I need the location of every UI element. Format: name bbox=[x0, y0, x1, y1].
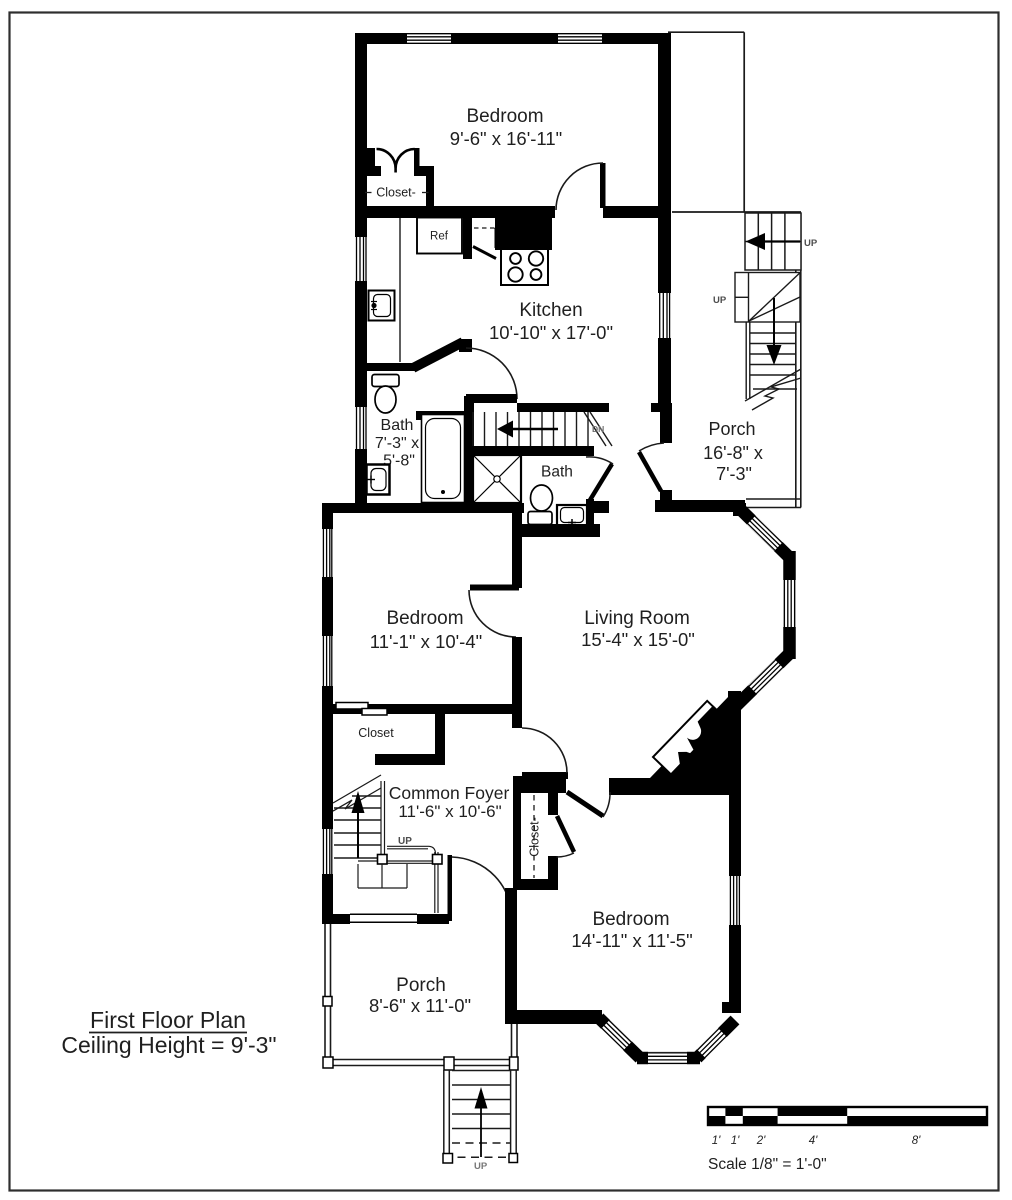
svg-text:Bedroom: Bedroom bbox=[466, 106, 543, 127]
svg-text:Bath: Bath bbox=[541, 464, 573, 481]
svg-text:Closet-: Closet- bbox=[528, 817, 542, 857]
svg-text:Ref: Ref bbox=[430, 231, 449, 243]
svg-text:8': 8' bbox=[912, 1135, 921, 1147]
svg-text:Ceiling Height = 9'-3": Ceiling Height = 9'-3" bbox=[61, 1032, 276, 1058]
svg-text:Common Foyer: Common Foyer bbox=[389, 783, 510, 803]
svg-text:7'-3" x: 7'-3" x bbox=[375, 435, 419, 452]
svg-text:Porch: Porch bbox=[396, 975, 446, 996]
svg-text:Kitchen: Kitchen bbox=[519, 300, 582, 321]
svg-text:1': 1' bbox=[731, 1135, 740, 1147]
svg-text:2': 2' bbox=[756, 1135, 766, 1147]
svg-text:11'-1" x 10'-4": 11'-1" x 10'-4" bbox=[370, 631, 482, 652]
svg-text:4': 4' bbox=[809, 1135, 818, 1147]
svg-text:14'-11" x 11'-5": 14'-11" x 11'-5" bbox=[571, 930, 692, 951]
svg-text:Bath: Bath bbox=[381, 417, 414, 434]
svg-text:7'-3": 7'-3" bbox=[716, 464, 752, 484]
svg-text:15'-4" x 15'-0": 15'-4" x 15'-0" bbox=[581, 629, 695, 650]
svg-text:1': 1' bbox=[712, 1135, 721, 1147]
svg-text:10'-10" x 17'-0": 10'-10" x 17'-0" bbox=[489, 322, 613, 343]
svg-text:Bedroom: Bedroom bbox=[386, 608, 463, 629]
svg-text:First Floor Plan: First Floor Plan bbox=[90, 1007, 246, 1033]
svg-text:Closet-: Closet- bbox=[376, 186, 416, 200]
svg-text:Scale 1/8" = 1'-0": Scale 1/8" = 1'-0" bbox=[708, 1156, 827, 1173]
svg-text:11'-6" x 10'-6": 11'-6" x 10'-6" bbox=[398, 802, 501, 821]
svg-text:Closet: Closet bbox=[358, 726, 394, 740]
svg-text:UP: UP bbox=[398, 836, 412, 847]
svg-text:UP: UP bbox=[474, 1161, 488, 1172]
svg-text:DN: DN bbox=[592, 424, 604, 434]
svg-text:16'-8" x: 16'-8" x bbox=[703, 443, 763, 463]
svg-text:Living Room: Living Room bbox=[584, 608, 690, 629]
svg-text:9'-6" x 16'-11": 9'-6" x 16'-11" bbox=[450, 128, 562, 149]
svg-text:UP: UP bbox=[804, 238, 818, 249]
svg-text:UP: UP bbox=[713, 295, 727, 306]
svg-text:Bedroom: Bedroom bbox=[592, 909, 669, 930]
svg-text:8'-6" x 11'-0": 8'-6" x 11'-0" bbox=[369, 995, 471, 1016]
svg-text:Porch: Porch bbox=[708, 419, 755, 439]
